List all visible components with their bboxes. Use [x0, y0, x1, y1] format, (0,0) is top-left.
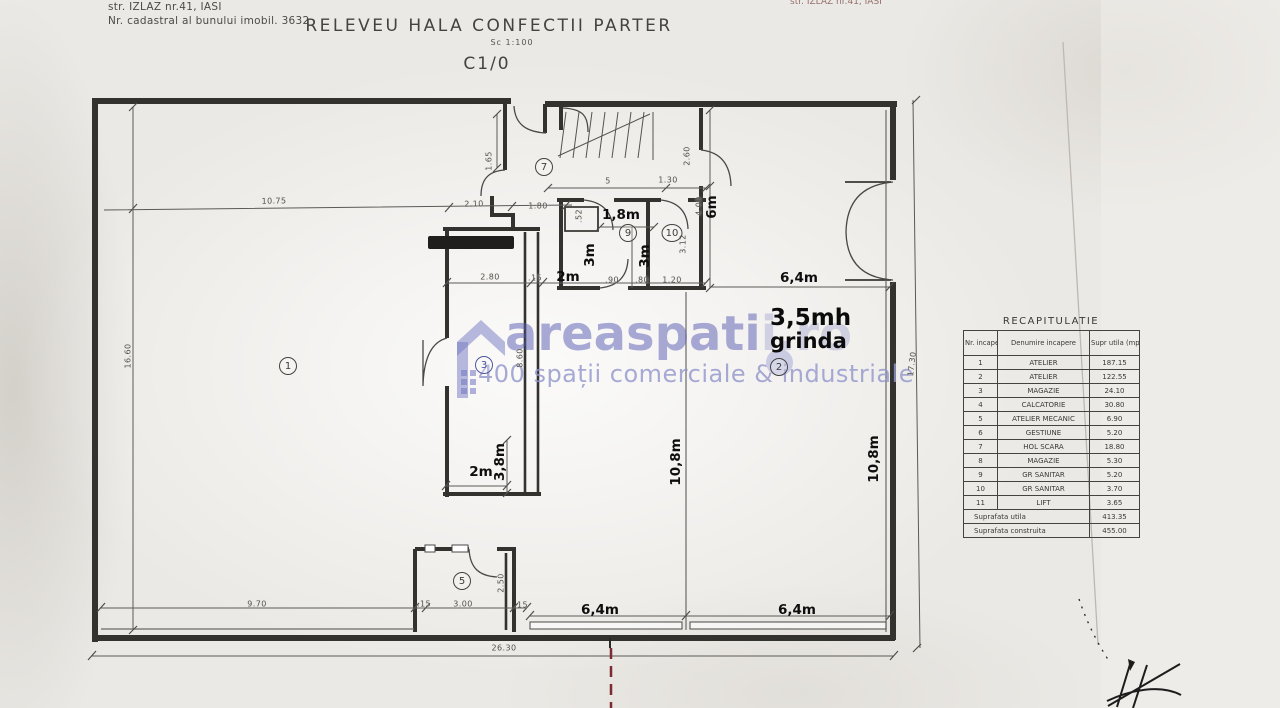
recap-cell: LIFT: [998, 496, 1090, 510]
address-line-1: str. IZLAZ nr.41, IASI: [108, 1, 222, 13]
dimension-label: 9.70: [247, 600, 266, 609]
dimension-label: 16.60: [124, 344, 133, 369]
recap-cell: 122.55: [1090, 370, 1140, 384]
recap-cell: 5: [964, 412, 998, 426]
recap-cell: GR SANITAR: [998, 482, 1090, 496]
recap-row: 5ATELIER MECANIC6.90: [964, 412, 1140, 426]
recap-cell: GR SANITAR: [998, 468, 1090, 482]
recap-cell: ATELIER MECANIC: [998, 412, 1090, 426]
recap-cell: 18.80: [1090, 440, 1140, 454]
recap-total-label: Suprafata utila: [964, 510, 1090, 524]
recap-header-row: Nr. incapere Denumire incapere Supr util…: [964, 331, 1140, 356]
dimension-label: 1.20: [662, 276, 681, 285]
dimension-label: 2.10: [464, 199, 484, 208]
measurement-label: 2m: [469, 464, 492, 480]
recap-row: 4CALCATORIE30.80: [964, 398, 1140, 412]
room-number: 3: [475, 356, 493, 374]
recap-cell: 9: [964, 468, 998, 482]
recap-cell: GESTIUNE: [998, 426, 1090, 440]
drawing-scale: Sc 1:100: [490, 38, 533, 47]
recap-cell: 10: [964, 482, 998, 496]
room-number: 10: [662, 224, 683, 242]
recap-cell: MAGAZIE: [998, 454, 1090, 468]
dimension-label: .52: [575, 209, 584, 223]
recap-row: 3MAGAZIE24.10: [964, 384, 1140, 398]
measurement-label: 6,4m: [780, 270, 818, 286]
recap-cell: 8: [964, 454, 998, 468]
dimension-label: 10.75: [261, 196, 286, 205]
recap-cell: 3.65: [1090, 496, 1140, 510]
room-number: 2: [770, 358, 788, 376]
recap-row: 6GESTIUNE5.20: [964, 426, 1140, 440]
recap-cell: 5.20: [1090, 468, 1140, 482]
dimension-label: 26.30: [492, 644, 517, 653]
recap-total-value: 455.00: [1090, 524, 1140, 538]
recap-cell: 4: [964, 398, 998, 412]
recap-row: 10GR SANITAR3.70: [964, 482, 1140, 496]
measurement-label: 6m: [704, 195, 720, 218]
room-number: 7: [535, 158, 553, 176]
measurement-label: 10,8m: [668, 438, 684, 485]
recap-cell: ATELIER: [998, 356, 1090, 370]
dimension-label: 3.00: [453, 600, 472, 609]
measurement-label: 6,4m: [581, 602, 619, 618]
recap-table-block: RECAPITULATIE Nr. incapere Denumire inca…: [963, 316, 1139, 538]
dimension-label: .15: [528, 274, 542, 283]
dimension-label: 2.60: [683, 146, 692, 165]
recap-cell: CALCATORIE: [998, 398, 1090, 412]
recap-col-nr: Nr. incapere: [964, 331, 998, 356]
recap-row: 2ATELIER122.55: [964, 370, 1140, 384]
recap-cell: 5.30: [1090, 454, 1140, 468]
recap-row: 9GR SANITAR5.20: [964, 468, 1140, 482]
recap-cell: HOL SCARA: [998, 440, 1090, 454]
recap-total-row: Suprafata construita455.00: [964, 524, 1140, 538]
dimension-label: 1.65: [485, 151, 494, 170]
room-number: 5: [453, 572, 471, 590]
recap-col-name: Denumire incapere: [998, 331, 1090, 356]
recap-cell: 3.70: [1090, 482, 1140, 496]
room-number: 1: [279, 357, 297, 375]
recap-cell: ATELIER: [998, 370, 1090, 384]
recap-cell: 1: [964, 356, 998, 370]
recap-total-value: 413.35: [1090, 510, 1140, 524]
dimension-label: .15: [417, 600, 431, 609]
dimension-label: 4.00: [695, 196, 704, 215]
beam-label: grinda: [770, 330, 851, 352]
measurement-label: 6,4m: [778, 602, 816, 618]
recap-cell: MAGAZIE: [998, 384, 1090, 398]
recap-table-title: RECAPITULATIE: [963, 316, 1139, 327]
dimension-label: 17.30: [906, 351, 918, 377]
dimension-label: .15: [514, 601, 528, 610]
recap-cell: 6.90: [1090, 412, 1140, 426]
measurement-label: 2m: [556, 269, 579, 285]
recap-col-area: Supr utila (mp): [1090, 331, 1140, 356]
beam-height-note: 3,5mh grinda: [770, 306, 851, 352]
cut-off-address-fragment: str. IZLAZ nr.41, IASI: [790, 0, 882, 7]
recap-total-row: Suprafata utila413.35: [964, 510, 1140, 524]
drawing-code: C1/0: [463, 54, 510, 74]
measurement-label: 1,8m: [602, 207, 640, 223]
recap-cell: 11: [964, 496, 998, 510]
recap-cell: 187.15: [1090, 356, 1140, 370]
dimension-label: 5: [605, 177, 611, 186]
recap-cell: 7: [964, 440, 998, 454]
recap-row: 8MAGAZIE5.30: [964, 454, 1140, 468]
recap-table: Nr. incapere Denumire incapere Supr util…: [963, 330, 1140, 538]
recap-cell: 6: [964, 426, 998, 440]
recap-row: 11LIFT3.65: [964, 496, 1140, 510]
address-line-2: Nr. cadastral al bunului imobil. 3632: [108, 15, 310, 27]
room-number: 9: [619, 224, 637, 242]
dimension-label: 8.60: [516, 348, 525, 367]
recap-row: 1ATELIER187.15: [964, 356, 1140, 370]
recap-total-label: Suprafata construita: [964, 524, 1090, 538]
measurement-label: 3m: [582, 243, 598, 266]
recap-cell: 5.20: [1090, 426, 1140, 440]
beam-height-value: 3,5mh: [770, 306, 851, 330]
drawing-title: RELEVEU HALA CONFECTII PARTER: [305, 16, 672, 36]
recap-table-body: 1ATELIER187.152ATELIER122.553MAGAZIE24.1…: [964, 356, 1140, 538]
measurement-label: 3,8m: [492, 443, 508, 481]
measurement-label: 10,8m: [866, 435, 882, 482]
dimension-label: 2.80: [480, 273, 499, 282]
scanned-floor-plan-page: areaspatii.ro 400 spații comerciale & in…: [0, 0, 1280, 708]
dimension-label: 2.50: [497, 573, 506, 592]
recap-cell: 2: [964, 370, 998, 384]
recap-cell: 3: [964, 384, 998, 398]
dimension-label: .90: [605, 276, 619, 285]
measurement-label: 3m: [637, 244, 653, 267]
recap-row: 7HOL SCARA18.80: [964, 440, 1140, 454]
recap-cell: 24.10: [1090, 384, 1140, 398]
dimension-label: 1.30: [658, 176, 677, 185]
dimension-label: 1.80: [528, 202, 547, 211]
recap-cell: 30.80: [1090, 398, 1140, 412]
dimension-label: .80: [635, 276, 649, 285]
